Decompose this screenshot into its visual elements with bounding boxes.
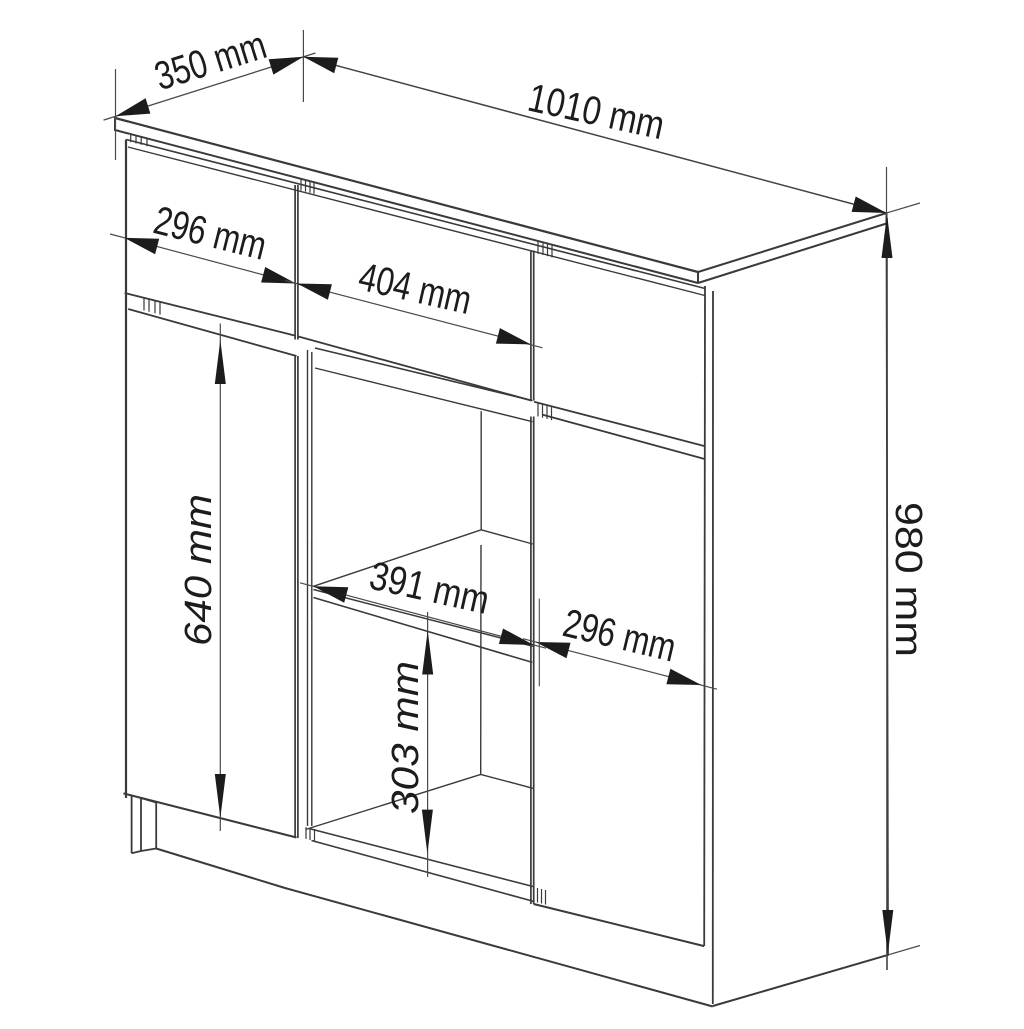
svg-text:980 mm: 980 mm <box>887 502 929 657</box>
svg-text:303 mm: 303 mm <box>385 661 427 814</box>
svg-text:640 mm: 640 mm <box>178 494 220 646</box>
